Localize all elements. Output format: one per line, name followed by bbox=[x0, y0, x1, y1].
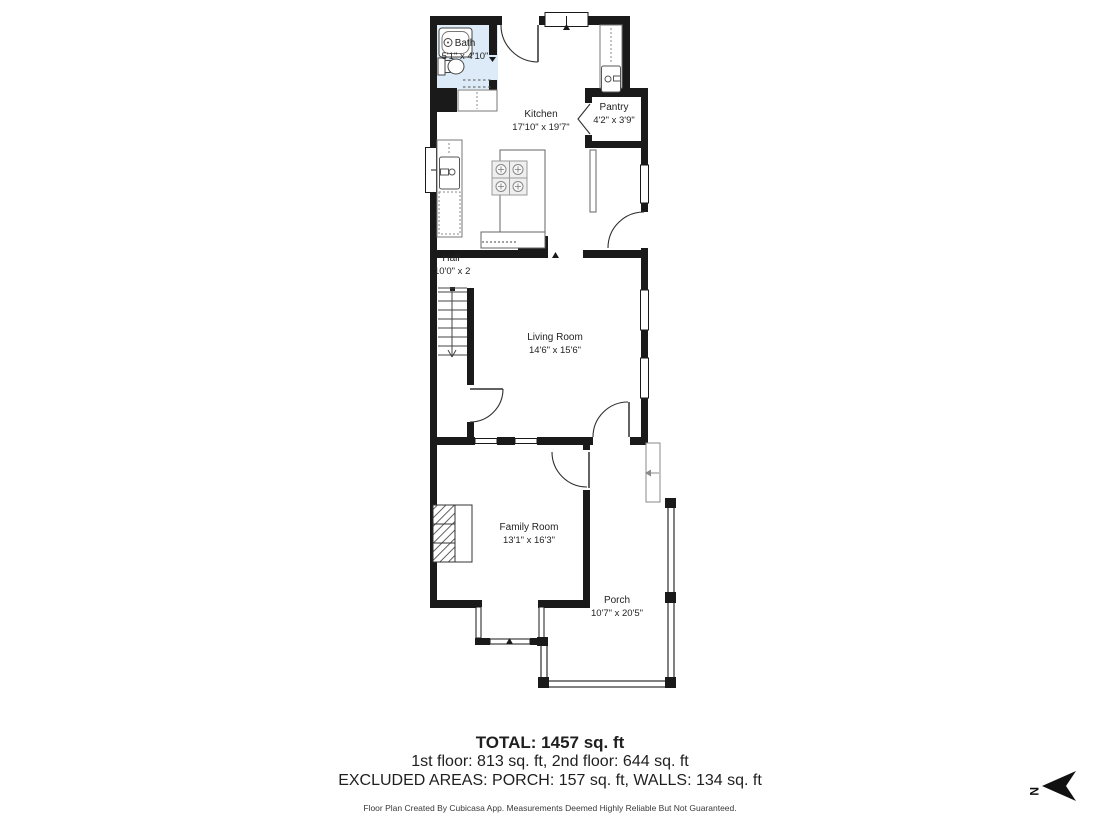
room-dims-hall: 10'0" x 2'9" bbox=[434, 266, 471, 277]
floor-plan-canvas: N Bath 5'1" x 4'10" Kitchen 17'10" x 19'… bbox=[0, 0, 1100, 825]
room-dims: 10'7" x 20'5" bbox=[567, 608, 667, 621]
room-label-living-room: Living Room 14'6" x 15'6" bbox=[500, 332, 610, 357]
door-arc-front-hall bbox=[470, 389, 503, 422]
porch-structure bbox=[537, 443, 676, 688]
window-bay-right bbox=[539, 607, 544, 638]
opening-living-family-2 bbox=[515, 439, 537, 444]
door-arc-east-room bbox=[608, 212, 644, 248]
area-summary: TOTAL: 1457 sq. ft 1st floor: 813 sq. ft… bbox=[0, 733, 1100, 813]
room-dims: 14'6" x 15'6" bbox=[500, 345, 610, 358]
room-dims: 13'1" x 16'3" bbox=[474, 535, 584, 548]
room-name: Family Room bbox=[474, 522, 584, 535]
room-name: Porch bbox=[567, 595, 667, 608]
disclaimer-text: Floor Plan Created By Cubicasa App. Meas… bbox=[0, 803, 1100, 813]
stairs-icon bbox=[438, 288, 467, 357]
room-label-bath: Bath 5'1" x 4'10" bbox=[429, 38, 501, 63]
window-kitchen-right bbox=[641, 165, 649, 203]
door-arc-kitchen-entry bbox=[501, 25, 538, 62]
room-label-porch: Porch 10'7" x 20'5" bbox=[567, 595, 667, 620]
room-dims: 5'1" x 4'10" bbox=[429, 51, 501, 64]
window-living-right-1 bbox=[641, 290, 649, 330]
room-name: Living Room bbox=[500, 332, 610, 345]
door-arc-family-porch bbox=[552, 452, 587, 487]
window-bay-left bbox=[476, 607, 481, 638]
excluded-areas: EXCLUDED AREAS: PORCH: 157 sq. ft, WALLS… bbox=[0, 772, 1100, 790]
partition-east bbox=[590, 150, 596, 212]
fireplace-icon bbox=[433, 505, 472, 562]
room-name: Bath bbox=[429, 38, 501, 51]
room-dims: 4'2" x 3'9" bbox=[574, 115, 654, 128]
total-area: TOTAL: 1457 sq. ft bbox=[0, 733, 1100, 752]
room-name: Pantry bbox=[574, 102, 654, 115]
door-arc-living-porch bbox=[593, 402, 628, 437]
window-living-right-2 bbox=[641, 358, 649, 398]
room-label-hall: Hall bbox=[430, 253, 472, 264]
stove-icon bbox=[492, 161, 527, 195]
room-label-family-room: Family Room 13'1" x 16'3" bbox=[474, 522, 584, 547]
opening-living-family-1 bbox=[475, 439, 497, 444]
floor-areas: 1st floor: 813 sq. ft, 2nd floor: 644 sq… bbox=[0, 753, 1100, 771]
room-label-pantry: Pantry 4'2" x 3'9" bbox=[574, 102, 654, 127]
